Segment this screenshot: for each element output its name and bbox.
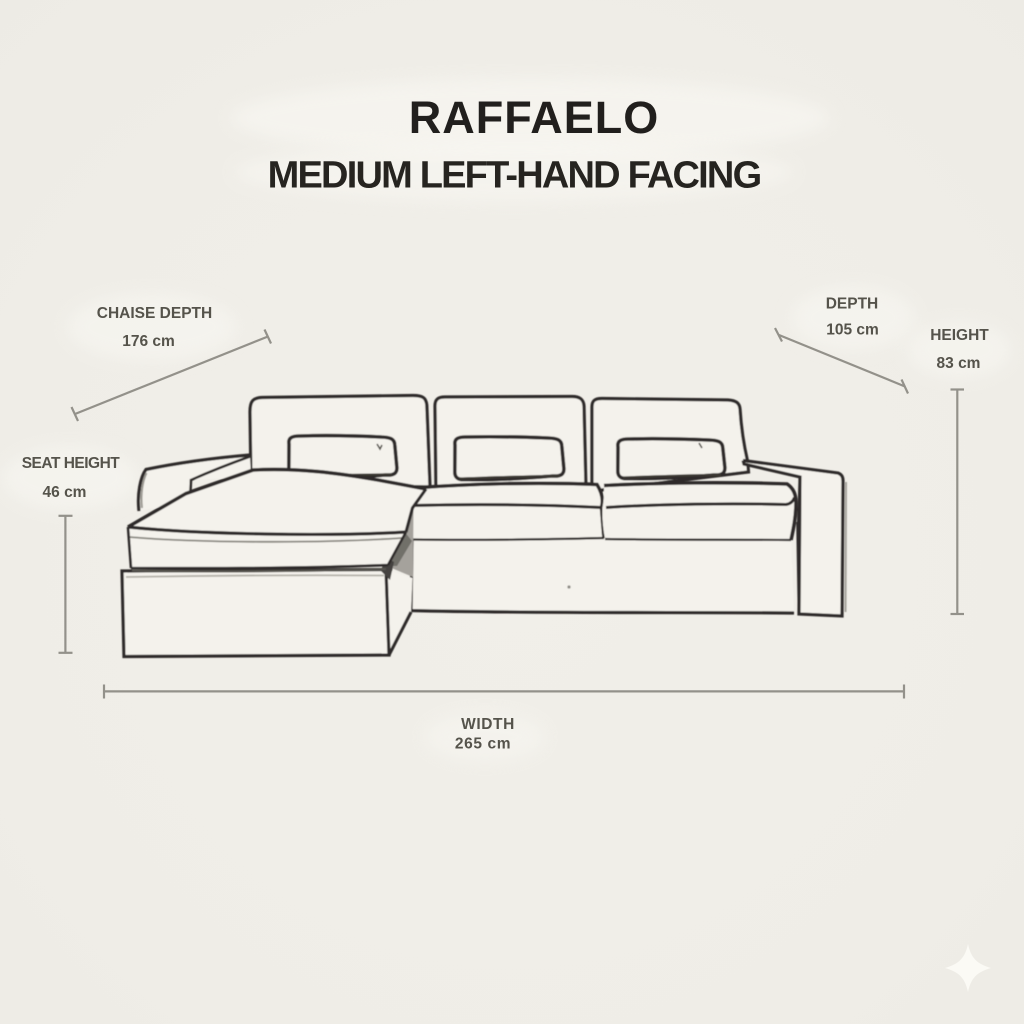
svg-text:HEIGHT: HEIGHT [930,327,989,344]
svg-text:83 cm: 83 cm [937,355,981,372]
svg-text:SEAT HEIGHT: SEAT HEIGHT [22,455,121,472]
svg-text:176 cm: 176 cm [122,333,175,350]
svg-text:DEPTH: DEPTH [826,296,879,313]
svg-text:MEDIUM LEFT-HAND FACING: MEDIUM LEFT-HAND FACING [268,155,761,197]
svg-text:WIDTH: WIDTH [461,716,515,733]
svg-text:265 cm: 265 cm [455,736,511,753]
svg-text:RAFFAELO: RAFFAELO [409,92,660,143]
svg-text:105 cm: 105 cm [826,322,879,339]
svg-text:CHAISE DEPTH: CHAISE DEPTH [97,305,212,322]
svg-text:46 cm: 46 cm [43,484,87,501]
